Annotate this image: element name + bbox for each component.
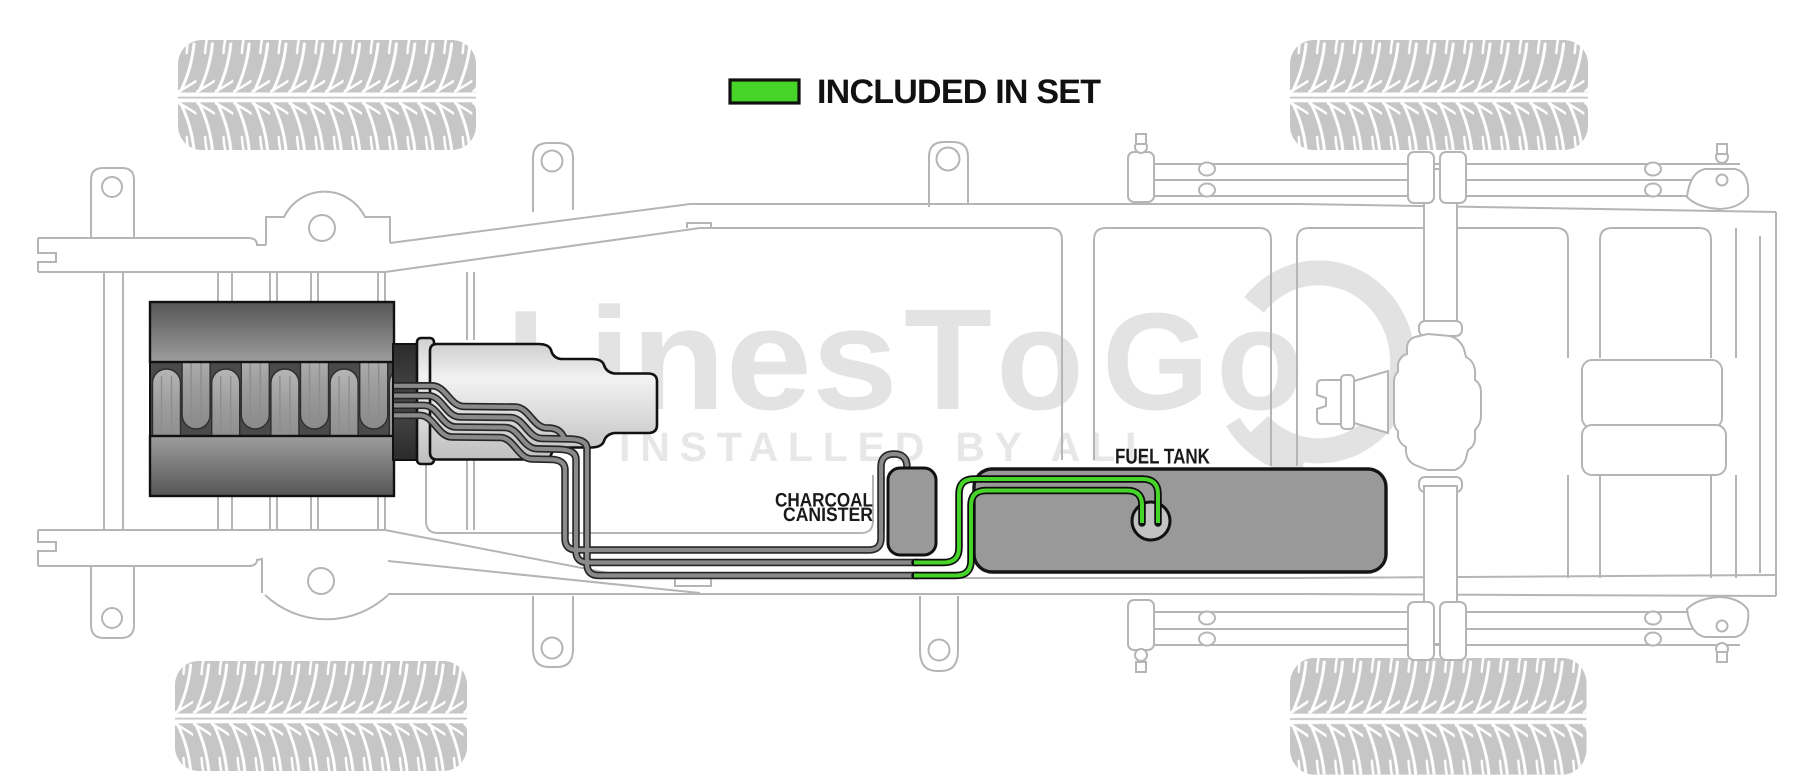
svg-text:T: T [904, 279, 992, 440]
svg-text:o: o [996, 279, 1084, 440]
svg-text:INSTALLED BY ALL: INSTALLED BY ALL [619, 424, 1164, 470]
svg-text:CANISTER: CANISTER [783, 504, 873, 526]
svg-text:FUEL TANK: FUEL TANK [1115, 445, 1210, 469]
svg-text:INCLUDED IN SET: INCLUDED IN SET [817, 73, 1101, 111]
svg-text:G: G [1102, 285, 1209, 439]
